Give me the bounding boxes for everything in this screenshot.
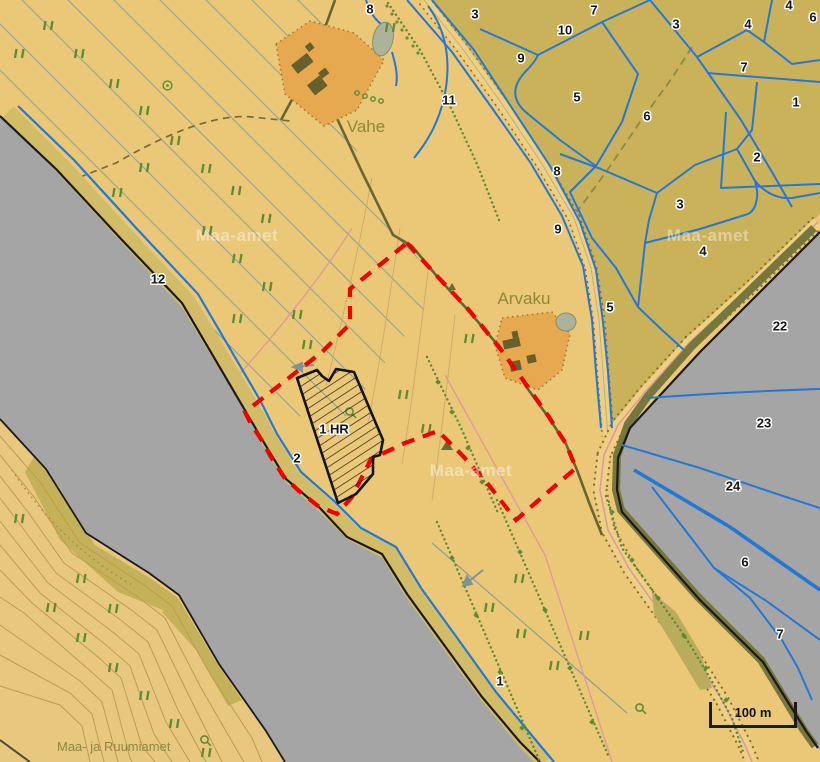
place-label: Arvaku	[498, 289, 551, 309]
attribution-text: Maa- ja Ruumiamet	[57, 739, 170, 754]
parcel-number: 23	[757, 415, 771, 430]
parcel-number: 3	[471, 6, 478, 21]
parcel-number: 6	[809, 9, 816, 24]
parcel-number: 4	[785, 0, 793, 12]
place-label: Vahe	[347, 117, 385, 137]
parcel-number: 1	[496, 673, 503, 688]
parcel-number: 2	[753, 149, 760, 164]
parcel-number: 11	[442, 92, 456, 107]
parcel-number: 8	[366, 1, 373, 16]
parcel-number: 12	[151, 271, 165, 286]
parcel-number: 10	[558, 22, 572, 37]
parcel-number: 22	[773, 318, 787, 333]
parcel-number: 7	[740, 59, 747, 74]
parcel-number: 5	[573, 89, 580, 104]
watermark: Maa-amet	[667, 226, 749, 246]
scale-bar: 100 m	[709, 702, 797, 728]
parcel-number: 6	[643, 108, 650, 123]
map-canvas[interactable]: 83107344697511162839412522232426711 HR	[0, 0, 820, 762]
parcel-number: 3	[672, 16, 679, 31]
parcel-number: 3	[676, 196, 683, 211]
watermark: Maa-amet	[430, 461, 512, 481]
pond	[556, 313, 576, 331]
parcel-number: 1	[792, 94, 799, 109]
parcel-number: 9	[517, 50, 524, 65]
parcel-number: 4	[744, 16, 752, 31]
parcel-number: 24	[726, 478, 741, 493]
scale-bar-label: 100 m	[735, 705, 772, 720]
parcel-number: 8	[553, 163, 560, 178]
parcel-number: 2	[293, 450, 300, 465]
parcel-number: 7	[590, 2, 597, 17]
watermark: Maa-amet	[196, 226, 278, 246]
selected-unit-label: 1 HR	[319, 421, 349, 436]
parcel-number: 5	[606, 299, 613, 314]
parcel-number: 9	[554, 221, 561, 236]
parcel-number: 7	[776, 626, 783, 641]
map-viewport[interactable]: 83107344697511162839412522232426711 HR V…	[0, 0, 820, 762]
parcel-number: 6	[741, 554, 748, 569]
